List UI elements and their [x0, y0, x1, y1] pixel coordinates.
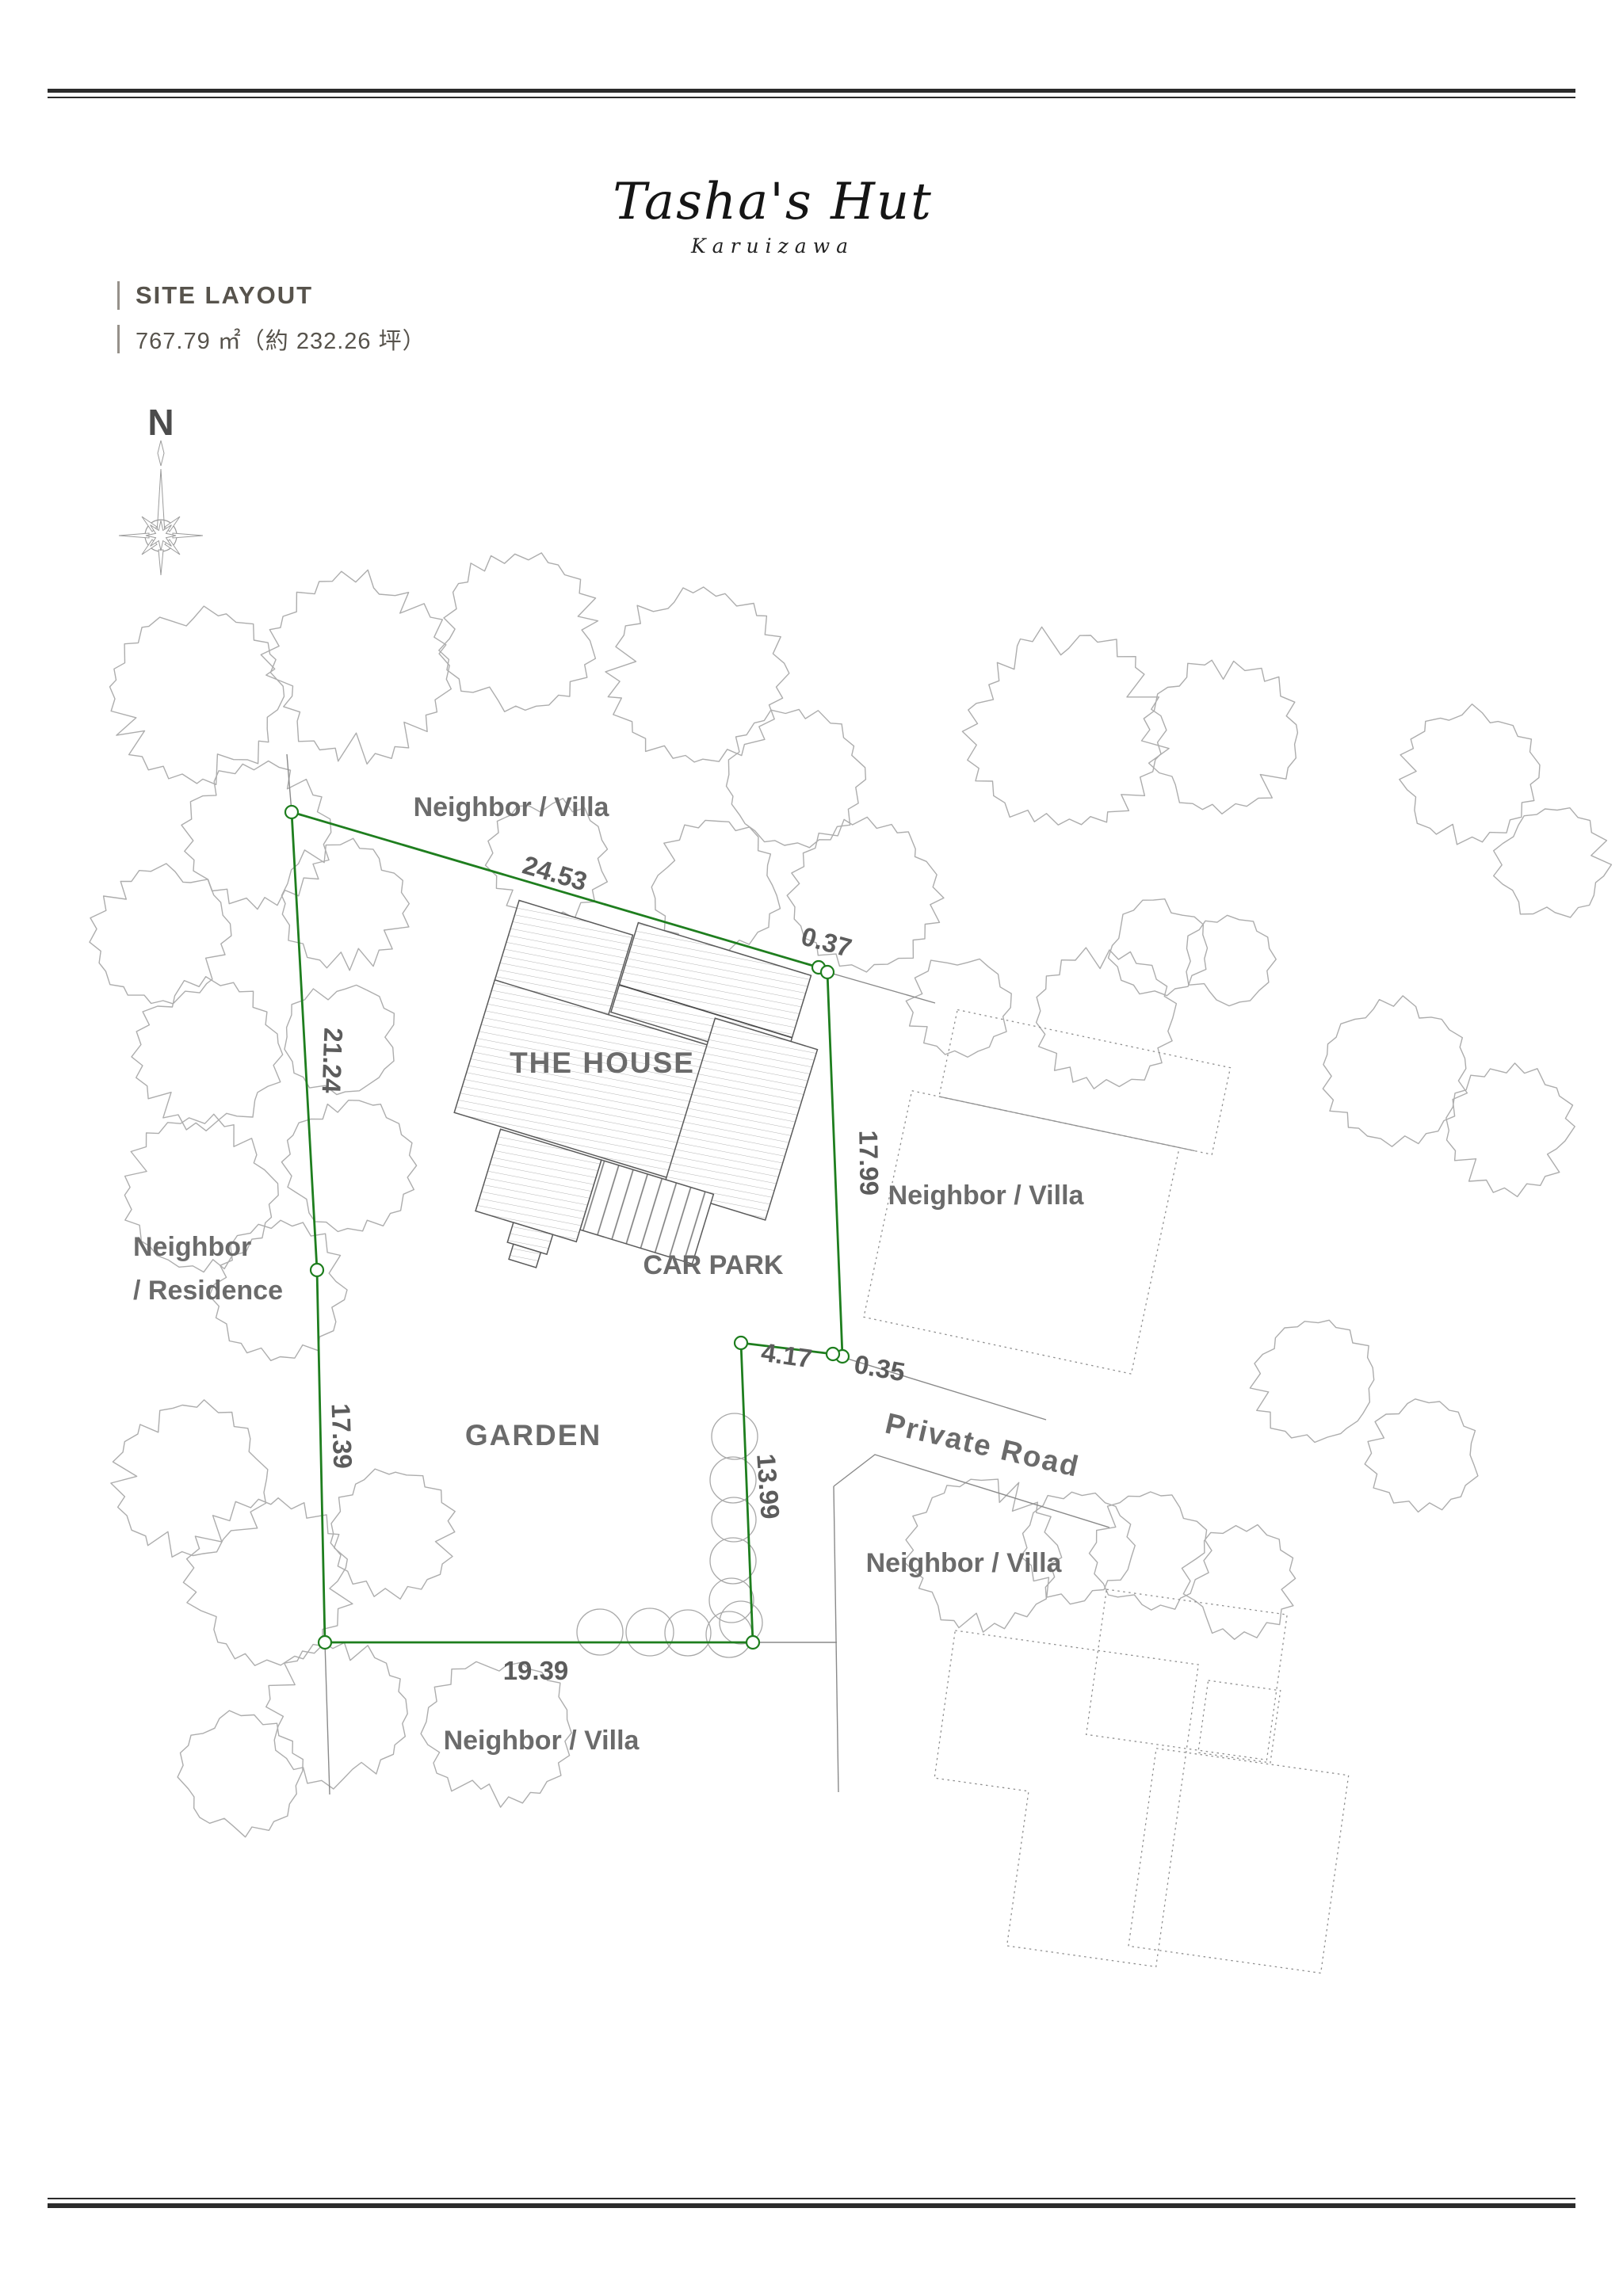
boundary-vertex — [735, 1337, 747, 1349]
dimension-se-jog: 0.35 — [852, 1349, 907, 1387]
boundary-vertex — [319, 1636, 331, 1649]
tree-outline — [1250, 1320, 1373, 1442]
compass-point-east — [173, 533, 203, 538]
tree-outline — [266, 1642, 408, 1789]
tree-outline — [281, 1100, 416, 1232]
compass-rose: N — [119, 402, 203, 575]
shrub-circle — [712, 1413, 758, 1459]
dimension-ne-jog: 0.37 — [798, 921, 855, 963]
neighbor-villa-east-main — [864, 1091, 1179, 1374]
shrub-circle — [626, 1608, 674, 1656]
tree-outline — [1446, 1063, 1575, 1197]
shrub-circle — [577, 1609, 623, 1655]
tree-outline — [330, 1469, 455, 1599]
boundary-vertex — [827, 1348, 839, 1360]
dimension-lower-east-edge: 13.99 — [751, 1453, 785, 1520]
label-neighbor-villa-south: Neighbor / Villa — [444, 1726, 640, 1756]
boundary-vertex — [285, 806, 298, 818]
shrub-circle — [710, 1457, 756, 1503]
bottom-border-thin — [48, 2198, 1575, 2199]
label-neighbor-residence-line1: Neighbor — [133, 1232, 251, 1262]
bottom-border-thick — [48, 2203, 1575, 2208]
neighbor-building-l-shape — [913, 1630, 1199, 1966]
tree-outline — [962, 627, 1167, 825]
neighbor-building-small — [1198, 1680, 1281, 1763]
tree-outline — [439, 553, 598, 711]
tree-outline — [281, 838, 409, 971]
tree-outline — [906, 959, 1011, 1057]
tree-outline — [181, 761, 331, 910]
label-neighbor-villa-road: Neighbor / Villa — [866, 1548, 1063, 1578]
site-plan-page: Tasha's Hut Karuizawa SITE LAYOUT 767.79… — [0, 0, 1623, 2296]
tree-outline — [178, 1711, 303, 1837]
label-the-house: THE HOUSE — [510, 1047, 695, 1079]
neighbor-building-lower — [1128, 1749, 1349, 1974]
label-private-road: Private Road — [882, 1407, 1083, 1483]
tree-outline — [1090, 1492, 1212, 1610]
road-edge-west — [834, 1486, 838, 1792]
label-car-park: CAR PARK — [643, 1250, 784, 1280]
label-neighbor-villa-north: Neighbor / Villa — [414, 792, 610, 822]
compass-point-south — [158, 550, 163, 575]
garden-shrubs — [577, 1413, 762, 1657]
shrub-circle — [706, 1611, 752, 1657]
tree-outline — [132, 977, 283, 1131]
shrub-circle — [665, 1610, 711, 1656]
tree-outline — [90, 864, 231, 1004]
label-neighbor-villa-east: Neighbor / Villa — [888, 1180, 1085, 1211]
tree-outline — [1400, 704, 1540, 845]
dimension-east-edge: 17.99 — [854, 1130, 884, 1196]
tree-outline — [1323, 996, 1467, 1146]
boundary-vertex — [821, 966, 834, 978]
compass-arrowhead — [158, 441, 164, 466]
label-neighbor-residence-line2: / Residence — [133, 1276, 283, 1306]
trees-layer — [90, 553, 1611, 1837]
compass-star — [146, 521, 176, 551]
label-garden: GARDEN — [465, 1419, 601, 1451]
compass-point-west — [119, 533, 149, 538]
tree-outline — [727, 709, 866, 847]
neighbor-building-upper — [1086, 1589, 1288, 1760]
dimension-carpark-edge: 4.17 — [759, 1337, 814, 1374]
compass-north-label: N — [147, 402, 174, 443]
tree-outline — [111, 1400, 268, 1557]
tree-outline — [110, 606, 285, 784]
dimension-lower-west-edge: 17.39 — [327, 1403, 358, 1470]
tree-outline — [605, 587, 789, 762]
dimension-upper-west-edge: 21.24 — [317, 1027, 349, 1093]
site-plan-drawing: 24.53 0.37 17.99 0.35 4.17 13.99 19.39 1… — [0, 0, 1623, 2296]
tree-outline — [1494, 808, 1612, 917]
tree-outline — [261, 570, 451, 764]
boundary-extension-south — [325, 1642, 330, 1794]
boundary-vertex — [747, 1636, 759, 1649]
neighbor-villa-east-seam — [939, 1097, 1195, 1151]
tree-outline — [1037, 948, 1177, 1089]
tree-outline — [1365, 1399, 1478, 1512]
dimension-south-edge: 19.39 — [503, 1656, 569, 1685]
neighbor-buildings-southeast — [913, 1569, 1369, 1989]
boundary-vertex — [311, 1264, 323, 1276]
tree-outline — [1142, 660, 1298, 814]
boundary-extension-north — [287, 754, 292, 812]
tree-outline — [1182, 1525, 1295, 1640]
tree-outline — [1109, 899, 1208, 996]
tree-outline — [1186, 915, 1276, 1005]
neighbor-villa-east-wing — [939, 1009, 1231, 1154]
